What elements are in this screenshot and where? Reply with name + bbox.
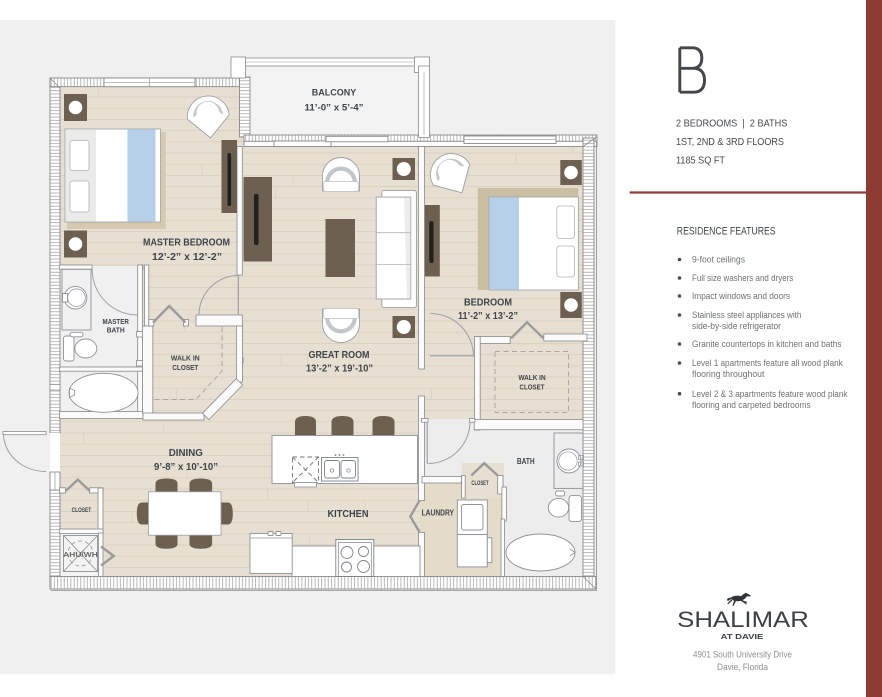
- svg-text:side-by-side refrigerator: side-by-side refrigerator: [692, 321, 781, 331]
- svg-text:CLOSET: CLOSET: [72, 508, 92, 514]
- svg-text:DINING: DINING: [169, 447, 203, 459]
- svg-text:SHALIMAR: SHALIMAR: [677, 607, 809, 632]
- svg-text:RESIDENCE FEATURES: RESIDENCE FEATURES: [677, 226, 776, 238]
- svg-text:AHU/WH: AHU/WH: [63, 550, 98, 559]
- svg-text:Davie, Florida: Davie, Florida: [717, 662, 768, 672]
- svg-text:13’-2” x 19’-10”: 13’-2” x 19’-10”: [306, 363, 373, 374]
- svg-text:1185 SQ FT: 1185 SQ FT: [676, 155, 725, 166]
- svg-text:BATH: BATH: [107, 326, 125, 335]
- svg-text:CLOSET: CLOSET: [520, 383, 545, 392]
- svg-text:flooring and carpeted bedrooms: flooring and carpeted bedrooms: [692, 400, 811, 410]
- svg-text:4901 South University Drive: 4901 South University Drive: [693, 650, 792, 660]
- svg-text:WALK IN: WALK IN: [518, 373, 545, 382]
- svg-text:12’-2” x 12’-2”: 12’-2” x 12’-2”: [152, 252, 222, 263]
- svg-text:MASTER BEDROOM: MASTER BEDROOM: [143, 237, 230, 249]
- svg-text:WALK IN: WALK IN: [171, 354, 200, 363]
- svg-text:AT DAVIE: AT DAVIE: [721, 634, 764, 641]
- svg-text:CLOSET: CLOSET: [172, 363, 198, 372]
- svg-text:11’-0” x 5’-4”: 11’-0” x 5’-4”: [305, 103, 364, 113]
- svg-text:Level 1 apartments feature all: Level 1 apartments feature all wood plan…: [692, 358, 843, 368]
- svg-text:KITCHEN: KITCHEN: [328, 508, 369, 520]
- svg-text:flooring throughout: flooring throughout: [692, 369, 765, 379]
- svg-text:11’-2” x 13’-2”: 11’-2” x 13’-2”: [458, 311, 518, 322]
- svg-text:Level 2 & 3 apartments feature: Level 2 & 3 apartments feature wood plan…: [692, 389, 848, 399]
- svg-text:GREAT ROOM: GREAT ROOM: [309, 349, 370, 361]
- svg-text:Granite countertops in kitchen: Granite countertops in kitchen and baths: [692, 339, 842, 349]
- svg-text:Full size washers and dryers: Full size washers and dryers: [692, 273, 794, 283]
- svg-text:9’-8” x 10’-10”: 9’-8” x 10’-10”: [154, 462, 218, 473]
- svg-text:BATH: BATH: [517, 457, 535, 466]
- svg-text:CLOSET: CLOSET: [471, 481, 488, 487]
- svg-text:2 BEDROOMS | 2 BATHS: 2 BEDROOMS | 2 BATHS: [676, 118, 788, 129]
- svg-text:BALCONY: BALCONY: [312, 88, 356, 98]
- svg-text:BEDROOM: BEDROOM: [464, 296, 512, 308]
- svg-text:LAUNDRY: LAUNDRY: [422, 508, 455, 517]
- svg-text:Stainless steel appliances wit: Stainless steel appliances with: [692, 310, 801, 320]
- svg-text:9-foot ceilings: 9-foot ceilings: [692, 255, 746, 265]
- svg-text:Impact windows and doors: Impact windows and doors: [692, 291, 791, 301]
- svg-text:1ST, 2ND & 3RD FLOORS: 1ST, 2ND & 3RD FLOORS: [676, 137, 784, 148]
